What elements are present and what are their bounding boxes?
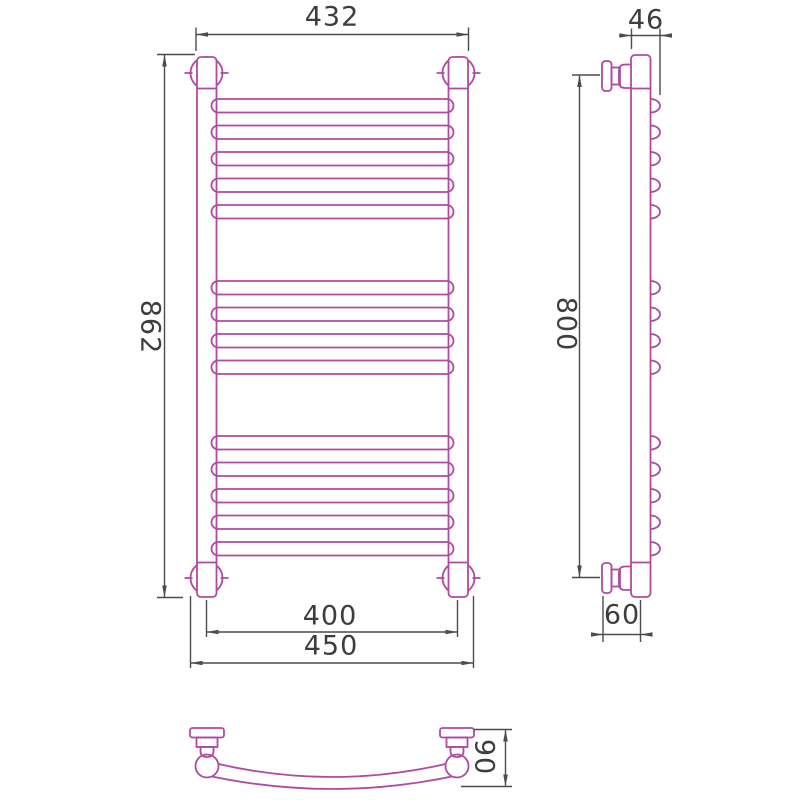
dimension-label-height: 862: [137, 300, 164, 355]
rung: [212, 463, 454, 477]
bottom-tube-section: [196, 755, 219, 778]
side-view: [602, 55, 660, 597]
dimension-label-plan-depth: 90: [471, 739, 498, 775]
rung: [212, 361, 454, 375]
side-bracket-top: [602, 61, 631, 91]
dimension-lines: [157, 28, 672, 787]
bottom-tube-section: [446, 755, 469, 778]
side-vertical-tube: [631, 55, 651, 597]
rung: [212, 489, 454, 503]
drawing-linework: [0, 0, 800, 800]
rung: [212, 99, 454, 113]
dimension-label-width-top: 432: [305, 4, 360, 31]
dimension-label-depth-top: 46: [628, 7, 664, 34]
rung: [212, 205, 454, 219]
rung: [212, 179, 454, 193]
front-view: [185, 57, 481, 597]
rung: [212, 308, 454, 322]
side-rung-bumps: [651, 99, 661, 556]
rung: [212, 281, 454, 295]
rung: [212, 436, 454, 450]
rung: [212, 126, 454, 140]
dimension-label-mount-height: 800: [553, 297, 580, 352]
dimension-label-width-overall: 450: [304, 633, 359, 660]
front-rungs: [212, 99, 454, 556]
bottom-curved-rail: [205, 763, 459, 789]
front-bracket-circles: [185, 57, 481, 594]
rung: [212, 542, 454, 556]
technical-drawing-canvas: 432 862 400 450 46 800 60 90: [0, 0, 800, 800]
side-bracket-bottom: [602, 563, 631, 593]
dimension-label-wall-offset: 60: [604, 602, 640, 629]
rung: [212, 516, 454, 530]
rung: [212, 152, 454, 166]
bottom-bracket-left: [190, 728, 224, 757]
rung: [212, 334, 454, 348]
bottom-view: [190, 728, 474, 789]
dimension-label-axis-spacing: 400: [303, 603, 358, 630]
